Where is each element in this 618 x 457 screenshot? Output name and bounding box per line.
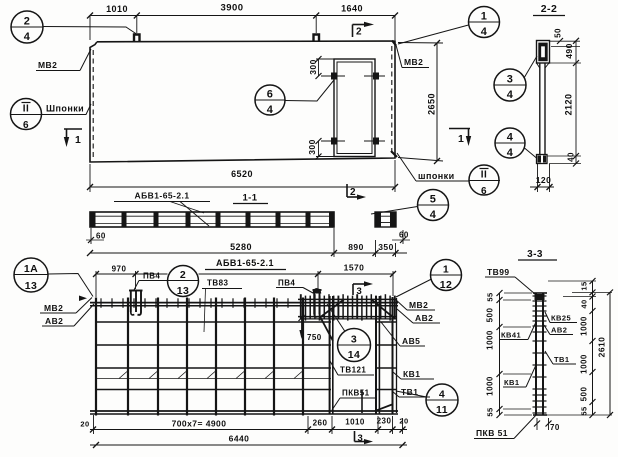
svg-text:2: 2: [24, 16, 31, 28]
svg-text:2: 2: [356, 27, 362, 38]
svg-text:ТВ83: ТВ83: [207, 279, 228, 288]
svg-text:60: 60: [96, 232, 106, 241]
svg-text:300: 300: [308, 59, 318, 75]
svg-text:4: 4: [430, 209, 437, 221]
svg-text:3: 3: [507, 74, 514, 86]
svg-text:2610: 2610: [597, 337, 607, 358]
svg-text:3: 3: [357, 286, 363, 297]
svg-text:55: 55: [486, 407, 495, 416]
svg-text:1000: 1000: [486, 376, 495, 396]
svg-text:2-2: 2-2: [541, 3, 558, 15]
svg-text:ПВ4: ПВ4: [143, 272, 160, 281]
svg-text:1-1: 1-1: [242, 193, 257, 204]
svg-text:12: 12: [440, 279, 453, 291]
svg-text:50: 50: [554, 28, 563, 38]
svg-text:1000: 1000: [580, 316, 589, 336]
svg-text:ПВ4: ПВ4: [278, 279, 295, 288]
svg-text:МВ2: МВ2: [44, 303, 63, 313]
svg-text:Шпонки: Шпонки: [46, 104, 84, 114]
svg-text:40: 40: [567, 152, 576, 162]
svg-text:2120: 2120: [564, 94, 574, 116]
svg-text:750: 750: [307, 333, 322, 342]
svg-text:1000: 1000: [580, 354, 589, 374]
svg-text:4: 4: [24, 31, 31, 43]
svg-text:МВ2: МВ2: [38, 60, 57, 70]
svg-text:70: 70: [550, 423, 560, 432]
svg-text:3: 3: [351, 334, 357, 346]
svg-text:ПКВ 51: ПКВ 51: [476, 428, 508, 438]
svg-text:1000: 1000: [486, 330, 495, 350]
svg-text:20: 20: [399, 417, 408, 426]
svg-text:3-3: 3-3: [527, 249, 543, 260]
svg-text:АВ2: АВ2: [45, 316, 63, 326]
svg-text:1010: 1010: [106, 4, 128, 14]
svg-text:6440: 6440: [229, 434, 250, 444]
svg-text:КВ1: КВ1: [504, 378, 520, 387]
svg-text:1: 1: [458, 133, 464, 145]
svg-text:260: 260: [313, 419, 328, 428]
svg-text:1010: 1010: [345, 418, 365, 427]
svg-text:5: 5: [430, 194, 437, 206]
svg-text:5280: 5280: [230, 242, 252, 252]
svg-text:2650: 2650: [427, 93, 437, 115]
svg-text:МВ2: МВ2: [409, 300, 428, 310]
svg-text:2: 2: [180, 269, 186, 281]
svg-text:4: 4: [507, 132, 514, 144]
svg-text:4: 4: [481, 26, 488, 38]
svg-text:500: 500: [486, 308, 495, 323]
svg-text:АБВ1-65-2.1: АБВ1-65-2.1: [135, 191, 190, 201]
svg-text:890: 890: [348, 242, 364, 252]
svg-text:II: II: [23, 104, 29, 115]
svg-text:КВ25: КВ25: [551, 314, 571, 323]
svg-text:4: 4: [267, 104, 274, 116]
svg-text:КВ41: КВ41: [501, 331, 521, 340]
svg-text:300: 300: [307, 139, 317, 155]
svg-text:АБВ1-65-2.1: АБВ1-65-2.1: [216, 258, 274, 268]
svg-text:6: 6: [267, 89, 274, 101]
svg-text:6520: 6520: [231, 169, 253, 179]
svg-text:3900: 3900: [221, 3, 244, 14]
svg-text:шпонки: шпонки: [418, 171, 455, 181]
svg-text:14: 14: [348, 349, 361, 361]
svg-text:230: 230: [377, 417, 392, 426]
svg-text:11: 11: [436, 404, 448, 416]
svg-text:АВ2: АВ2: [551, 326, 567, 335]
svg-text:КВ1: КВ1: [403, 369, 420, 379]
svg-text:АВ2: АВ2: [415, 313, 433, 323]
svg-text:55: 55: [580, 406, 589, 415]
svg-text:1570: 1570: [344, 263, 365, 273]
svg-text:II: II: [481, 170, 487, 181]
svg-text:13: 13: [25, 280, 38, 292]
svg-text:1: 1: [443, 264, 449, 276]
svg-text:1А: 1А: [24, 263, 38, 275]
svg-text:6: 6: [481, 186, 487, 197]
svg-text:1: 1: [481, 11, 488, 23]
svg-text:120: 120: [536, 175, 552, 185]
svg-text:40: 40: [580, 299, 589, 308]
svg-text:ТВ1: ТВ1: [554, 355, 570, 364]
svg-text:500: 500: [580, 387, 589, 402]
svg-text:15: 15: [580, 281, 589, 290]
svg-text:55: 55: [486, 292, 495, 301]
svg-text:АВ5: АВ5: [402, 336, 420, 346]
svg-text:4: 4: [507, 89, 514, 101]
svg-text:ТВ121: ТВ121: [340, 366, 366, 375]
svg-text:60: 60: [399, 231, 409, 240]
svg-text:1: 1: [75, 134, 81, 146]
svg-text:350: 350: [378, 242, 394, 252]
svg-text:2: 2: [350, 187, 356, 198]
svg-text:4: 4: [507, 147, 514, 159]
svg-text:6: 6: [23, 120, 29, 131]
svg-text:ПКВ51: ПКВ51: [342, 389, 370, 398]
svg-text:970: 970: [112, 265, 127, 274]
svg-text:20: 20: [80, 420, 89, 429]
svg-text:3: 3: [358, 433, 364, 444]
svg-text:13: 13: [177, 285, 190, 297]
svg-text:4: 4: [439, 389, 445, 401]
svg-text:МВ2: МВ2: [404, 57, 423, 67]
svg-text:490: 490: [564, 43, 574, 59]
svg-text:ТВ99: ТВ99: [487, 267, 510, 277]
svg-text:700х7= 4900: 700х7= 4900: [172, 419, 227, 429]
svg-text:1640: 1640: [341, 4, 363, 14]
